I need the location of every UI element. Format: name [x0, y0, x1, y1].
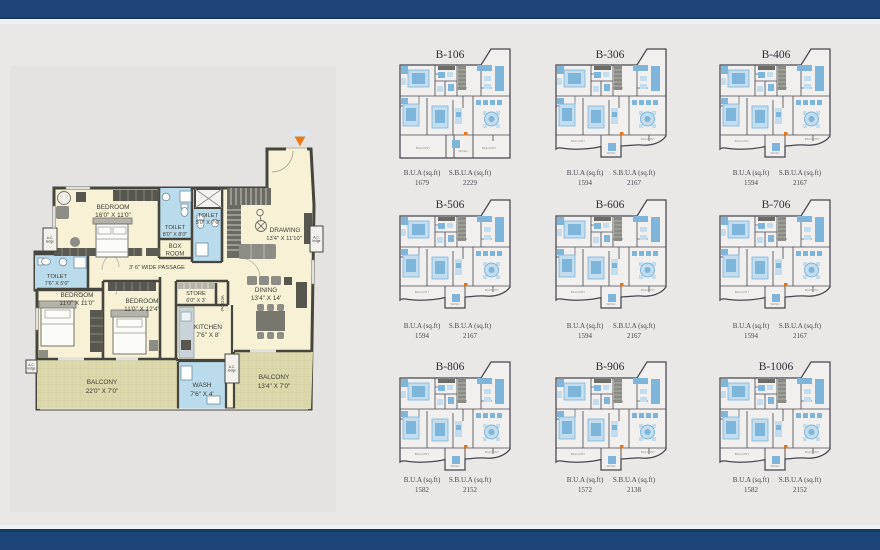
- svg-text:TOILET: TOILET: [165, 225, 186, 231]
- svg-text:B.U.A (sq.ft): B.U.A (sq.ft): [404, 476, 441, 484]
- svg-text:1594: 1594: [578, 179, 593, 187]
- svg-text:2152: 2152: [463, 486, 478, 494]
- svg-text:DRAWING: DRAWING: [270, 227, 301, 234]
- svg-text:3' 6" WIDE PASSAGE: 3' 6" WIDE PASSAGE: [129, 265, 185, 271]
- svg-text:1594: 1594: [744, 179, 759, 187]
- svg-text:2167: 2167: [627, 332, 642, 340]
- svg-text:ROOM: ROOM: [166, 252, 185, 258]
- svg-text:BEDROOM: BEDROOM: [96, 204, 129, 211]
- svg-text:1582: 1582: [415, 486, 430, 494]
- svg-text:S.B.U.A (sq.ft): S.B.U.A (sq.ft): [449, 169, 492, 177]
- svg-text:2152: 2152: [793, 486, 808, 494]
- svg-text:STORE: STORE: [186, 291, 206, 297]
- svg-text:2167: 2167: [793, 179, 808, 187]
- svg-text:B-406: B-406: [762, 49, 791, 61]
- svg-text:2229: 2229: [463, 179, 478, 187]
- svg-text:1594: 1594: [744, 332, 759, 340]
- svg-text:B.U.A (sq.ft): B.U.A (sq.ft): [567, 169, 604, 177]
- svg-text:B-506: B-506: [436, 199, 465, 211]
- svg-text:B-806: B-806: [436, 361, 465, 373]
- svg-text:B-606: B-606: [596, 199, 625, 211]
- svg-text:B-906: B-906: [596, 361, 625, 373]
- svg-text:2138: 2138: [627, 486, 642, 494]
- svg-text:11'0" X 11'0": 11'0" X 11'0": [59, 300, 94, 307]
- svg-text:BALCONY: BALCONY: [87, 379, 118, 386]
- svg-text:S.B.U.A (sq.ft): S.B.U.A (sq.ft): [779, 169, 822, 177]
- svg-text:B.U.A (sq.ft): B.U.A (sq.ft): [567, 322, 604, 330]
- svg-text:1594: 1594: [578, 332, 593, 340]
- svg-text:WASH: WASH: [193, 382, 212, 389]
- svg-text:S.B.U.A (sq.ft): S.B.U.A (sq.ft): [779, 322, 822, 330]
- svg-text:13'4" X 11'10": 13'4" X 11'10": [266, 236, 302, 242]
- svg-text:6'0" X 3': 6'0" X 3': [186, 298, 206, 304]
- svg-text:1582: 1582: [744, 486, 759, 494]
- svg-text:B-706: B-706: [762, 199, 791, 211]
- svg-text:ledge: ledge: [27, 367, 35, 371]
- svg-text:B.U.A (sq.ft): B.U.A (sq.ft): [733, 476, 770, 484]
- svg-text:B.U.A (sq.ft): B.U.A (sq.ft): [733, 169, 770, 177]
- svg-text:ledge: ledge: [312, 239, 320, 243]
- svg-text:S.B.U.A (sq.ft): S.B.U.A (sq.ft): [613, 169, 656, 177]
- svg-text:8'0" X 8'0": 8'0" X 8'0": [163, 232, 188, 238]
- svg-text:13'4" X 14': 13'4" X 14': [251, 295, 281, 302]
- svg-text:S.B.U.A (sq.ft): S.B.U.A (sq.ft): [613, 322, 656, 330]
- svg-text:BEDROOM: BEDROOM: [60, 292, 93, 299]
- svg-text:B-306: B-306: [596, 49, 625, 61]
- svg-text:B.U.A (sq.ft): B.U.A (sq.ft): [404, 322, 441, 330]
- svg-text:7'6" X 8': 7'6" X 8': [196, 332, 219, 339]
- svg-text:ledge: ledge: [228, 369, 236, 373]
- svg-text:B.U.A (sq.ft): B.U.A (sq.ft): [404, 169, 441, 177]
- svg-text:TOILET: TOILET: [198, 213, 219, 219]
- svg-text:S.B.U.A (sq.ft): S.B.U.A (sq.ft): [449, 322, 492, 330]
- svg-text:B-1006: B-1006: [759, 361, 794, 373]
- svg-text:2167: 2167: [463, 332, 478, 340]
- svg-text:2167: 2167: [793, 332, 808, 340]
- svg-text:22'0" X 7'0": 22'0" X 7'0": [86, 388, 119, 395]
- svg-text:B-106: B-106: [436, 49, 465, 61]
- svg-text:1594: 1594: [415, 332, 430, 340]
- svg-text:5'0" X 7'6": 5'0" X 7'6": [196, 220, 221, 226]
- svg-text:2167: 2167: [627, 179, 642, 187]
- svg-text:S.B.U.A (sq.ft): S.B.U.A (sq.ft): [779, 476, 822, 484]
- svg-text:TOILET: TOILET: [47, 274, 68, 280]
- svg-text:1679: 1679: [415, 179, 430, 187]
- svg-text:DINING: DINING: [255, 287, 277, 294]
- svg-text:S.B.U.A (sq.ft): S.B.U.A (sq.ft): [613, 476, 656, 484]
- svg-text:B.U.A (sq.ft): B.U.A (sq.ft): [733, 322, 770, 330]
- svg-text:7'6" X 4': 7'6" X 4': [190, 391, 213, 398]
- svg-text:7'6" X 5'0": 7'6" X 5'0": [45, 281, 70, 287]
- svg-text:POOJA: POOJA: [220, 294, 225, 311]
- svg-text:B.U.A (sq.ft): B.U.A (sq.ft): [567, 476, 604, 484]
- svg-text:13'4" X 7'0": 13'4" X 7'0": [258, 383, 291, 390]
- svg-text:BEDROOM: BEDROOM: [125, 298, 158, 305]
- svg-text:16'0" X 11'0": 16'0" X 11'0": [95, 212, 131, 219]
- svg-text:11'0" X 12'4": 11'0" X 12'4": [124, 306, 160, 313]
- svg-text:KITCHEN: KITCHEN: [194, 324, 222, 331]
- svg-text:ledge: ledge: [46, 240, 54, 244]
- svg-text:1572: 1572: [578, 486, 593, 494]
- svg-text:BOX: BOX: [169, 244, 182, 250]
- svg-text:BALCONY: BALCONY: [259, 374, 290, 381]
- svg-text:S.B.U.A (sq.ft): S.B.U.A (sq.ft): [449, 476, 492, 484]
